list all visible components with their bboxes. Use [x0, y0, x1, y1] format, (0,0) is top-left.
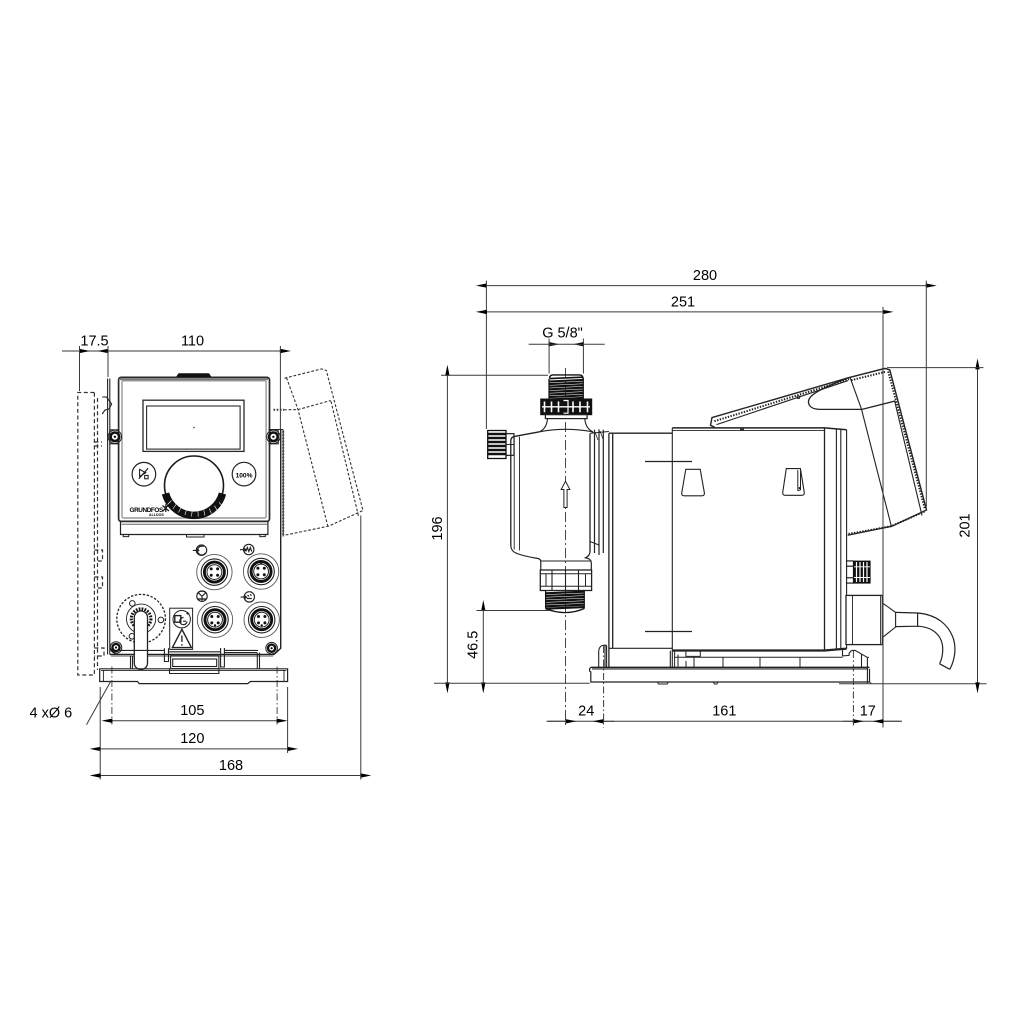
svg-text:168: 168 [219, 758, 243, 774]
svg-text:196: 196 [430, 516, 446, 540]
svg-text:120: 120 [180, 731, 204, 747]
svg-text:201: 201 [957, 513, 973, 537]
svg-text:ALLDOS: ALLDOS [149, 513, 164, 517]
svg-text:17: 17 [860, 703, 876, 719]
svg-text:280: 280 [693, 268, 717, 284]
svg-text:251: 251 [671, 295, 695, 311]
svg-text:161: 161 [712, 703, 736, 719]
svg-text:105: 105 [180, 703, 204, 719]
svg-text:24: 24 [578, 703, 594, 719]
svg-text:4 xØ 6: 4 xØ 6 [30, 706, 73, 722]
svg-text:17.5: 17.5 [80, 333, 108, 349]
svg-text:46.5: 46.5 [465, 631, 481, 659]
svg-text:G 5/8": G 5/8" [542, 326, 583, 342]
svg-text:100%: 100% [236, 473, 253, 480]
svg-text:110: 110 [181, 333, 204, 349]
